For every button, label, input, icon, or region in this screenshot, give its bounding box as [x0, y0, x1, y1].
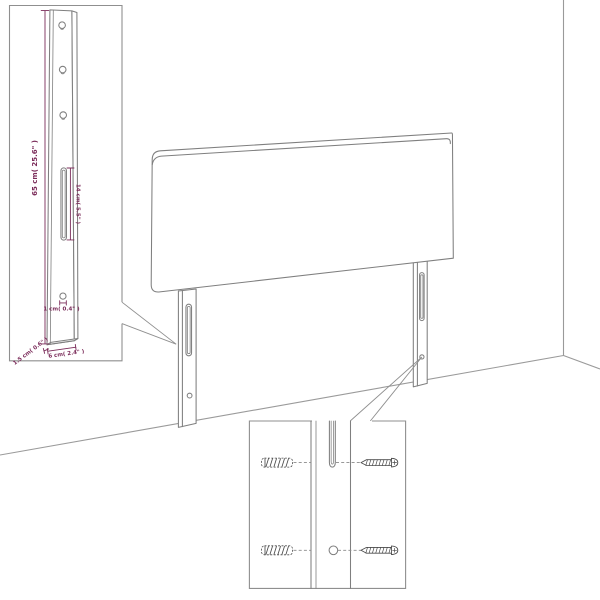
callout-leader-lines: [122, 302, 422, 421]
diagram-canvas: 65 cm( 25.6" ) 14 cm( 5.5" ) 1 cm( 0.4" …: [0, 0, 600, 600]
right-leg-board: [413, 260, 427, 387]
right-inset-border: [249, 421, 405, 588]
inset-hardware-detail: [249, 421, 405, 588]
slot-dimension-label: 14 cm( 5.5" ): [75, 184, 81, 225]
leg-detail-drawing: [47, 10, 78, 345]
headboard-diagram: 65 cm( 25.6" ) 14 cm( 5.5" ) 1 cm( 0.4" …: [0, 0, 600, 600]
hole-dimension-label: 1 cm( 0.4" ): [43, 307, 80, 313]
right-inset-leader: [350, 357, 422, 421]
panel-outline: [151, 133, 453, 292]
headboard-panel: [151, 133, 453, 292]
headboard-leg-right: [413, 260, 427, 387]
floor-line-right: [564, 356, 600, 370]
height-dimension-label: 65 cm( 25.6" ): [31, 140, 39, 196]
left-inset-leader: [122, 302, 176, 344]
inset-leg-detail: 65 cm( 25.6" ) 14 cm( 5.5" ) 1 cm( 0.4" …: [10, 6, 123, 367]
